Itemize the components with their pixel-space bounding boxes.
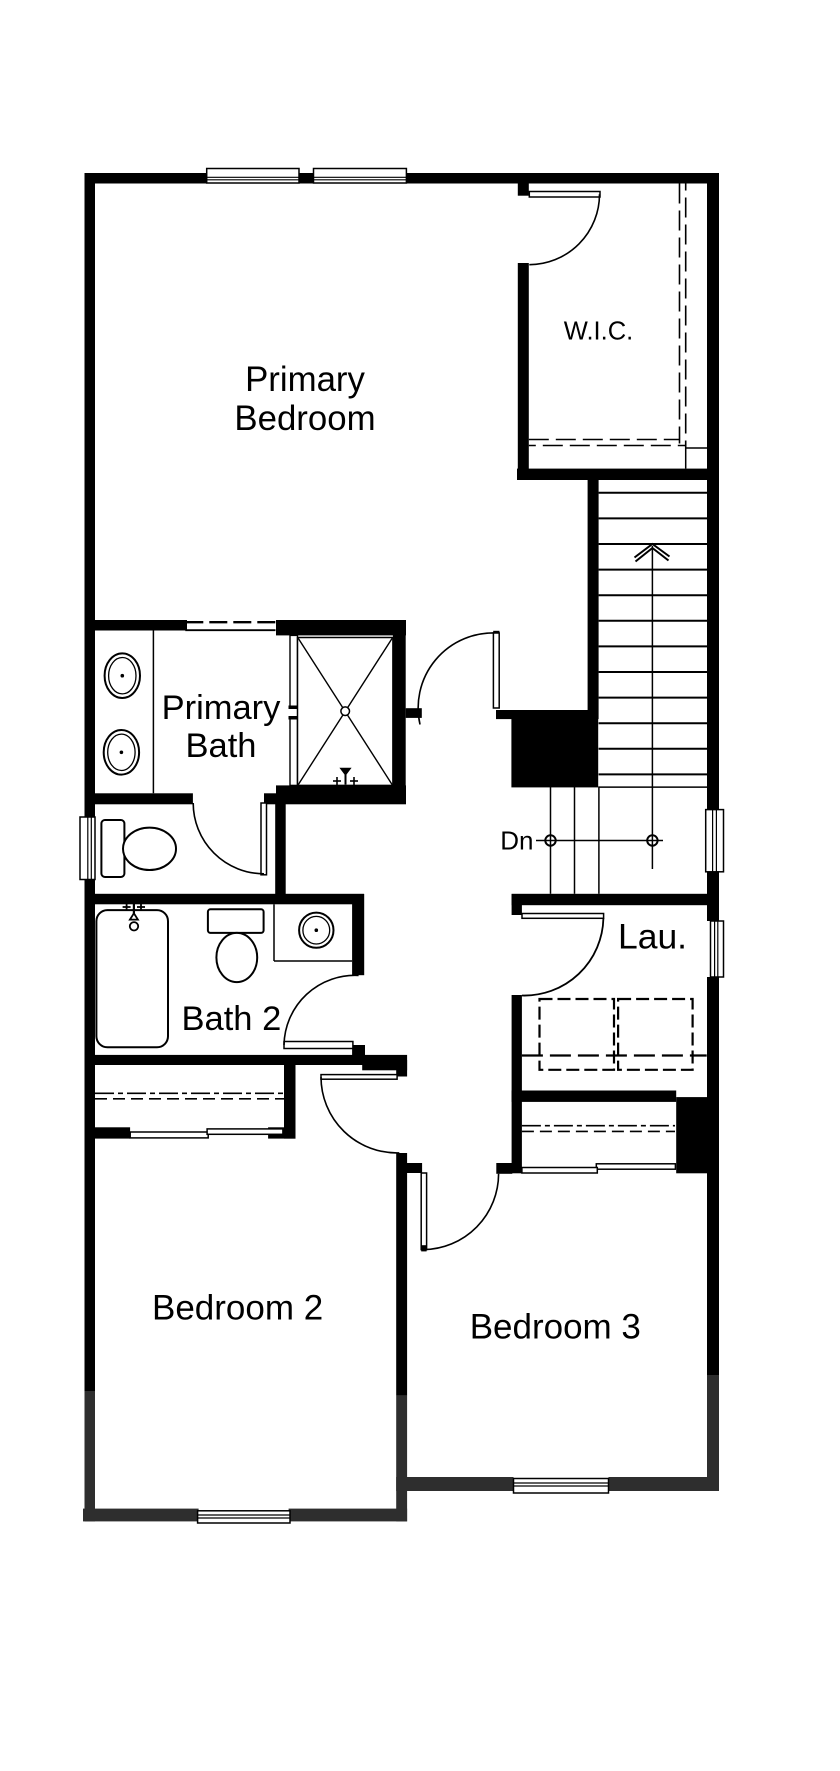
svg-text:Primary: Primary xyxy=(245,360,365,399)
svg-text:Bedroom 2: Bedroom 2 xyxy=(152,1288,323,1327)
svg-text:Bath 2: Bath 2 xyxy=(182,1000,282,1038)
svg-text:Bedroom 3: Bedroom 3 xyxy=(470,1308,641,1347)
svg-text:W.I.C.: W.I.C. xyxy=(564,317,633,345)
svg-text:Primary: Primary xyxy=(162,689,282,727)
svg-text:Bedroom: Bedroom xyxy=(234,399,375,438)
svg-text:Bath: Bath xyxy=(186,727,257,765)
svg-text:Dn: Dn xyxy=(500,826,533,856)
svg-text:Lau.: Lau. xyxy=(618,916,687,956)
